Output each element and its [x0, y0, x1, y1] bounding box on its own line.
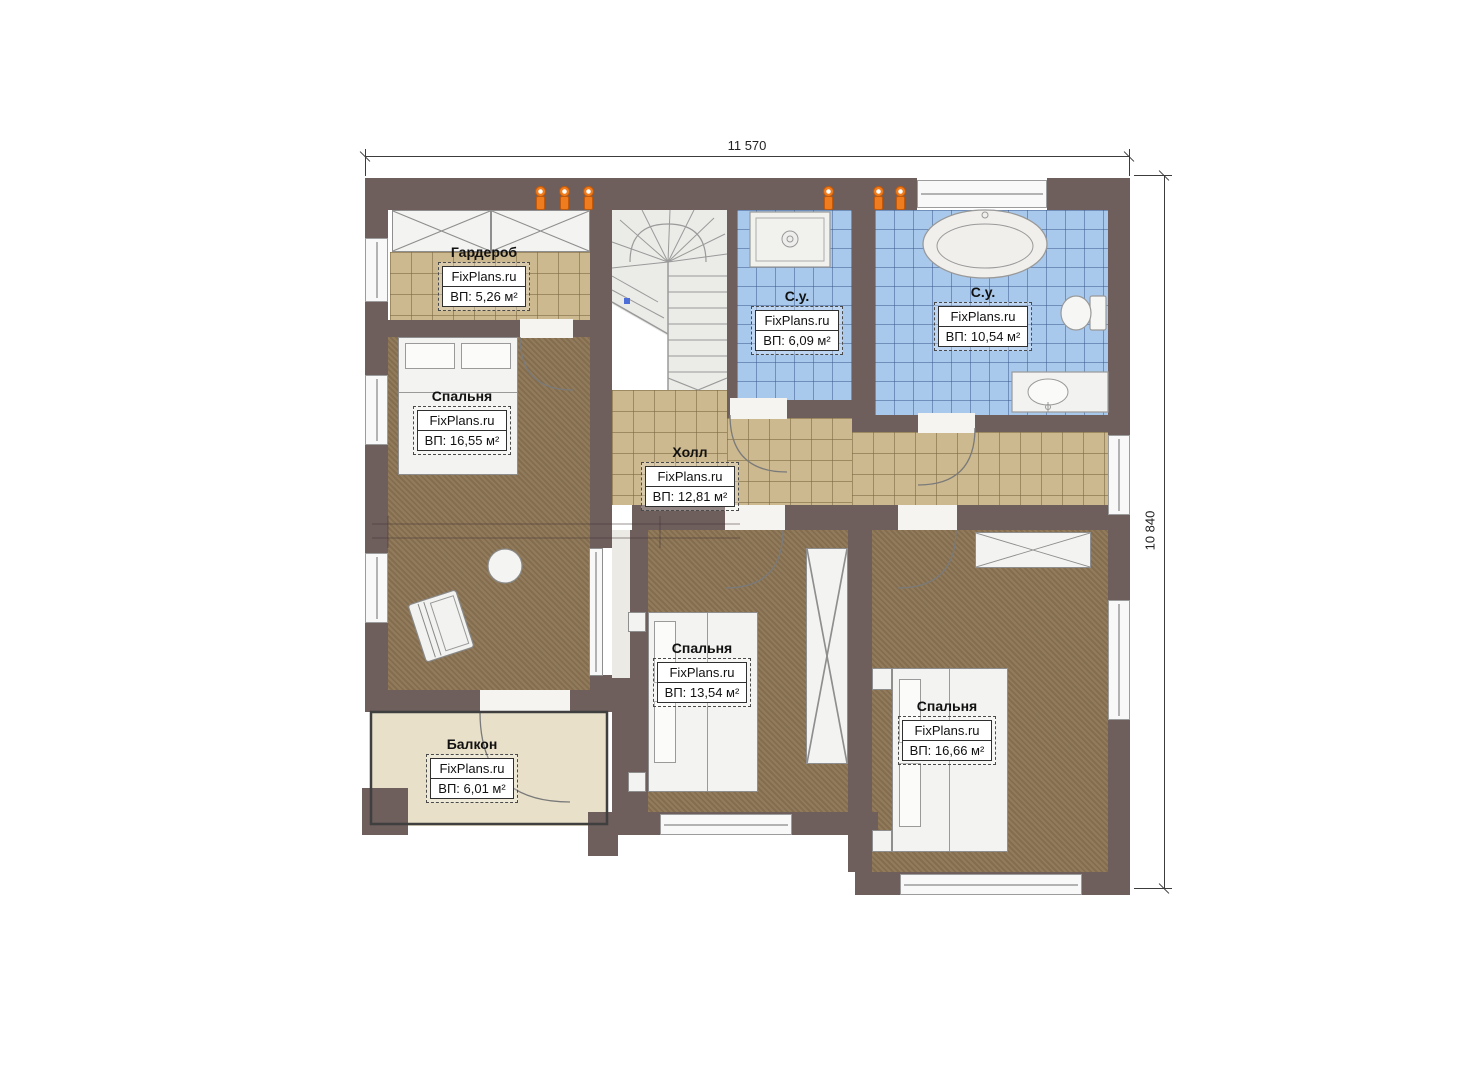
nightstand: [872, 830, 892, 852]
room-label-bedroom-right: Спальня FixPlans.ru ВП: 16,66 м²: [862, 698, 1032, 765]
window: [365, 238, 388, 302]
room-area: ВП: 5,26 м²: [442, 286, 525, 307]
pillow: [654, 701, 676, 763]
door-opening: [520, 319, 573, 338]
room-label-balcony: Балкон FixPlans.ru ВП: 6,01 м²: [387, 736, 557, 803]
staircase-icon: [612, 210, 727, 390]
wall: [1108, 178, 1130, 435]
brand-watermark: FixPlans.ru: [645, 466, 736, 487]
brand-watermark: FixPlans.ru: [417, 410, 508, 431]
room-name: Холл: [605, 444, 775, 460]
wall: [365, 302, 388, 375]
door-opening: [918, 413, 975, 433]
dimension-extension: [1134, 888, 1172, 889]
dimension-line-top: [365, 156, 1130, 157]
dimension-width-label: 11 570: [697, 138, 797, 153]
room-name: С.у.: [712, 288, 882, 304]
label-box: FixPlans.ru ВП: 6,09 м²: [751, 306, 842, 355]
label-box: FixPlans.ru ВП: 5,26 м²: [438, 262, 529, 311]
room-label-bathroom-large: С.у. FixPlans.ru ВП: 10,54 м²: [898, 284, 1068, 351]
wall: [388, 690, 480, 712]
wall: [957, 505, 1108, 530]
label-box: FixPlans.ru ВП: 16,66 м²: [898, 716, 997, 765]
label-box: FixPlans.ru ВП: 6,01 м²: [426, 754, 517, 803]
room-name: Спальня: [617, 640, 787, 656]
room-label-hall: Холл FixPlans.ru ВП: 12,81 м²: [605, 444, 775, 511]
wardrobe-cabinet: [975, 532, 1091, 568]
label-box: FixPlans.ru ВП: 10,54 м²: [934, 302, 1033, 351]
dimension-height-label: 10 840: [1143, 481, 1158, 581]
wall: [365, 178, 388, 238]
brand-watermark: FixPlans.ru: [755, 310, 838, 331]
label-box: FixPlans.ru ВП: 13,54 м²: [653, 658, 752, 707]
balcony-pillar: [588, 812, 618, 856]
room-label-wardrobe: Гардероб FixPlans.ru ВП: 5,26 м²: [399, 244, 569, 311]
room-area: ВП: 13,54 м²: [657, 682, 748, 703]
window: [917, 180, 1047, 208]
room-name: Балкон: [387, 736, 557, 752]
room-area: ВП: 12,81 м²: [645, 486, 736, 507]
radiator-icon: [872, 186, 885, 210]
label-box: FixPlans.ru ВП: 12,81 м²: [641, 462, 740, 511]
radiator-icon: [558, 186, 571, 210]
floor-plan: Гардероб FixPlans.ru ВП: 5,26 м² Спальня…: [0, 0, 1474, 1080]
radiator-icon: [822, 186, 835, 210]
room-area: ВП: 6,09 м²: [755, 330, 838, 351]
room-name: Спальня: [377, 388, 547, 404]
wall: [1108, 720, 1130, 895]
door-opening: [730, 398, 787, 419]
nightstand: [628, 612, 646, 632]
wall: [875, 415, 1108, 432]
wall: [570, 690, 612, 712]
brand-watermark: FixPlans.ru: [430, 758, 513, 779]
wall: [785, 505, 898, 530]
brand-watermark: FixPlans.ru: [442, 266, 525, 287]
dimension-extension: [365, 149, 366, 176]
door-opening: [480, 690, 570, 713]
wardrobe-cabinet: [806, 548, 848, 764]
pillow: [405, 343, 455, 369]
room-name: С.у.: [898, 284, 1068, 300]
radiator-icon: [582, 186, 595, 210]
wall: [590, 675, 612, 690]
room-area: ВП: 16,66 м²: [902, 740, 993, 761]
window: [1108, 435, 1130, 515]
dimension-extension: [1129, 149, 1130, 176]
radiator-icon: [894, 186, 907, 210]
dimension-line-right: [1164, 175, 1165, 888]
room-area: ВП: 16,55 м²: [417, 430, 508, 451]
window: [660, 814, 792, 835]
room-label-bedroom-left: Спальня FixPlans.ru ВП: 16,55 м²: [377, 388, 547, 455]
nightstand: [872, 668, 892, 690]
room-label-bathroom-small: С.у. FixPlans.ru ВП: 6,09 м²: [712, 288, 882, 355]
brand-watermark: FixPlans.ru: [902, 720, 993, 741]
room-name: Спальня: [862, 698, 1032, 714]
window: [900, 874, 1082, 895]
brand-watermark: FixPlans.ru: [938, 306, 1029, 327]
pillow: [899, 763, 921, 827]
room-name: Гардероб: [399, 244, 569, 260]
brand-watermark: FixPlans.ru: [657, 662, 748, 683]
hall-floor: [852, 432, 1108, 505]
pillow: [461, 343, 511, 369]
room-area: ВП: 10,54 м²: [938, 326, 1029, 347]
wall: [388, 320, 520, 337]
room-label-bedroom-middle: Спальня FixPlans.ru ВП: 13,54 м²: [617, 640, 787, 707]
nightstand: [628, 772, 646, 792]
window: [1108, 600, 1130, 720]
wall: [365, 623, 388, 712]
wall: [1108, 515, 1130, 600]
room-area: ВП: 6,01 м²: [430, 778, 513, 799]
label-box: FixPlans.ru ВП: 16,55 м²: [413, 406, 512, 455]
wall: [365, 445, 388, 553]
dimension-extension: [1134, 175, 1172, 176]
sliding-door: [589, 548, 603, 676]
window: [365, 553, 388, 623]
radiator-icon: [534, 186, 547, 210]
door-opening: [898, 505, 957, 530]
